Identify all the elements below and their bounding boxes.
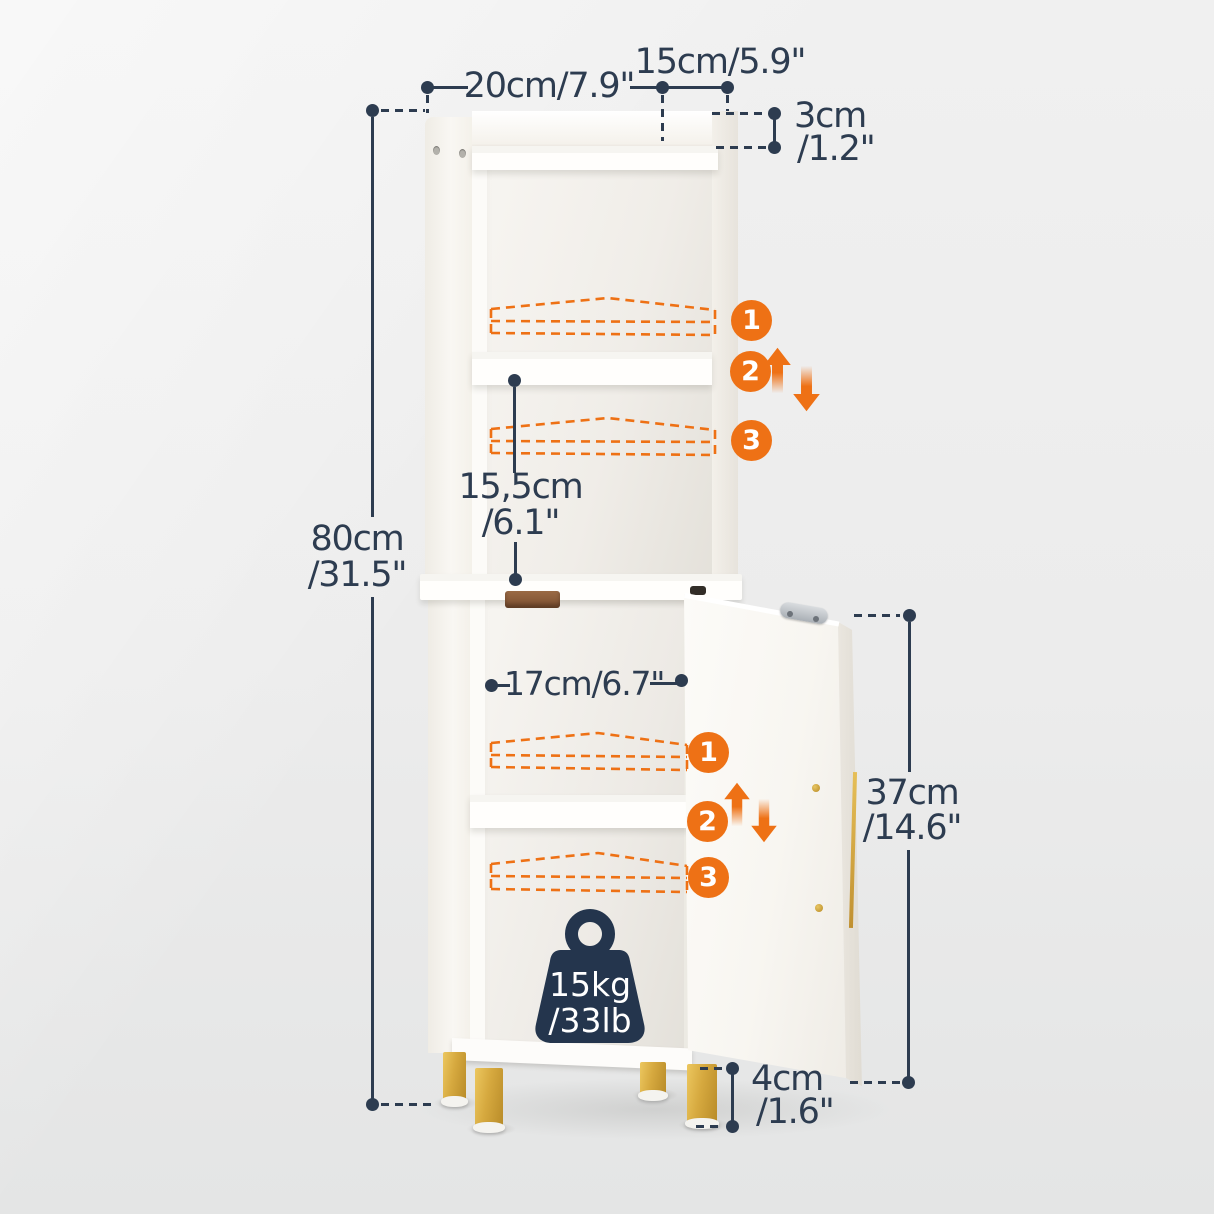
- dim-endpoint: [421, 81, 434, 94]
- dim-endpoint: [508, 374, 521, 387]
- hutch-right-panel: [712, 111, 738, 581]
- dim-line: [513, 387, 516, 473]
- dim-line: [663, 86, 728, 89]
- dim-extension: [700, 1067, 726, 1070]
- dim-endpoint: [366, 1098, 379, 1111]
- dim-endpoint: [509, 573, 522, 586]
- arrow-up-icon: [762, 347, 793, 394]
- hutch-top-board: [472, 146, 718, 170]
- dim-label-spacing-cm: 15,5cm: [448, 470, 593, 505]
- dim-label-height-cm: 80cm: [296, 522, 418, 557]
- ghost-shelf-outline: [488, 294, 718, 338]
- dim-endpoint: [721, 81, 734, 94]
- cabinet-leg: [443, 1052, 466, 1100]
- ghost-shelf-outline: [488, 729, 690, 773]
- magnetic-catch: [505, 591, 560, 608]
- panel-screw-icon: [433, 146, 440, 155]
- ghost-shelf-outline: [488, 414, 718, 458]
- dim-endpoint: [726, 1120, 739, 1133]
- hutch-back-lip: [472, 111, 718, 149]
- dim-label-door-cm: 37cm: [856, 776, 968, 811]
- capacity-lb-label: /33lb: [548, 1001, 631, 1040]
- dim-label-door-in: /14.6": [856, 811, 968, 846]
- dim-endpoint: [726, 1062, 739, 1075]
- dim-line: [371, 117, 374, 517]
- dim-label-height-in: /31.5": [296, 558, 418, 593]
- dim-label-inner-width: 17cm/6.7": [504, 667, 652, 700]
- dim-extension: [850, 1081, 900, 1084]
- dim-line: [908, 622, 911, 772]
- leg-foot-cap: [473, 1122, 505, 1133]
- cabinet-leg: [687, 1064, 717, 1122]
- dim-extension: [712, 112, 766, 115]
- leg-foot-cap: [441, 1096, 468, 1107]
- dim-label-spacing-in: /6.1": [448, 506, 593, 541]
- shelf-position-badge-3: 3: [731, 420, 772, 461]
- dim-endpoint: [366, 104, 379, 117]
- cabinet-leg: [640, 1062, 666, 1094]
- dim-label-leg-in: /1.6": [756, 1095, 834, 1130]
- dim-extension: [381, 109, 425, 112]
- dim-extension: [381, 1103, 437, 1106]
- dim-endpoint: [485, 679, 498, 692]
- dim-extension: [726, 95, 729, 111]
- dim-endpoint: [902, 1076, 915, 1089]
- shelf-position-badge-1: 1: [688, 732, 729, 773]
- shelf-position-badge-1: 1: [731, 300, 772, 341]
- dim-line: [731, 1073, 734, 1123]
- dim-label-top-width: 20cm/7.9": [458, 69, 640, 104]
- door-screw-icon: [815, 904, 823, 912]
- product-dimension-diagram: 15kg /33lb 1 2 3 1 2: [0, 0, 1214, 1214]
- arrow-up-icon: [722, 782, 752, 827]
- dim-extension: [716, 146, 766, 149]
- lower-shelf: [470, 795, 688, 828]
- dim-extension: [661, 95, 664, 141]
- capacity-kg-label: 15kg: [549, 965, 631, 1004]
- weight-capacity-icon: 15kg /33lb: [528, 908, 656, 1048]
- arrow-down-icon: [749, 798, 779, 843]
- dim-endpoint: [768, 107, 781, 120]
- dim-extension: [854, 614, 900, 617]
- panel-screw-icon: [459, 149, 466, 158]
- leg-foot-cap: [638, 1090, 668, 1101]
- plate-screw-icon: [813, 616, 819, 622]
- dim-line: [514, 542, 517, 576]
- dim-endpoint: [656, 81, 669, 94]
- dim-extension: [696, 1125, 724, 1128]
- lower-left-panel: [428, 593, 470, 1053]
- dim-label-lip-in: /1.2": [797, 132, 875, 167]
- dim-endpoint: [903, 609, 916, 622]
- ghost-shelf-outline: [488, 849, 690, 895]
- dim-line: [371, 597, 374, 1101]
- cabinet-leg: [475, 1068, 503, 1126]
- dim-label-top-depth: 15cm/5.9": [634, 45, 806, 80]
- shelf-position-badge-3: 3: [688, 857, 729, 898]
- door-screw-icon: [812, 784, 820, 792]
- dim-endpoint: [768, 141, 781, 154]
- dim-endpoint: [675, 674, 688, 687]
- dim-line: [907, 850, 910, 1078]
- arrow-down-icon: [791, 365, 822, 412]
- dim-extension: [426, 95, 429, 113]
